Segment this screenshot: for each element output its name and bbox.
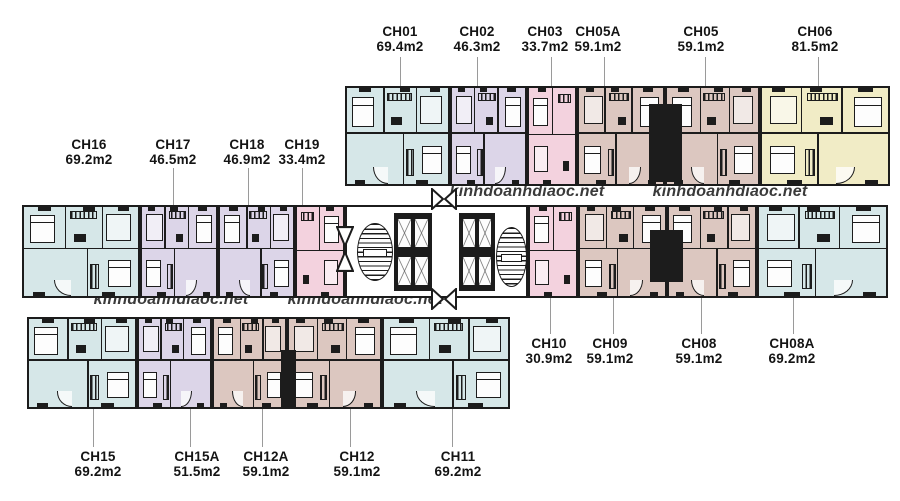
wall-divider [631,88,632,132]
fixture-icon [468,403,483,407]
stairs-icon [357,223,393,281]
stairs-icon [496,227,527,287]
wardrobe-icon [249,211,267,219]
fixture-icon [153,403,162,407]
door-arc-icon [181,391,192,407]
unit-id-text: CH15 [75,449,122,464]
bathroom-icon [105,326,128,352]
fixture-icon [817,234,830,242]
wardrobe-icon [805,149,815,176]
wall-divider [497,88,498,132]
unit-CH10 [528,205,578,298]
elevator-icon [398,219,411,247]
unit-CH03 [527,86,577,186]
unit-interior [347,88,448,184]
unit-CH18 [218,205,295,298]
fixture-icon [197,403,204,407]
wall-divider [87,359,88,407]
elevator-icon [463,257,476,285]
wardrobe-icon [807,93,837,102]
bed-icon [585,260,602,287]
unit-label-CH01: CH0169.4m2 [377,24,424,55]
wardrobe-icon [611,211,631,219]
wall-divider [317,319,318,359]
bathroom-icon [535,260,550,285]
fixture-icon [586,88,594,92]
bed-icon [422,146,442,175]
fixture-icon [38,207,52,211]
fixture-icon [364,403,373,407]
fixture-icon [272,319,279,323]
fixture-icon [229,207,238,211]
unit-area-text: 69.2m2 [769,351,816,366]
unit-label-CH06: CH0681.5m2 [792,24,839,55]
fixture-icon [448,319,460,323]
fixture-icon [101,403,114,407]
wall-divider [384,359,508,360]
bed-icon [196,215,212,243]
fixture-icon [787,180,802,184]
wardrobe-icon [720,149,727,176]
wardrobe-icon [609,264,616,289]
fixture-icon [679,207,689,211]
unit-label-CH08A: CH08A69.2m2 [769,336,816,367]
label-leader-line [173,168,174,205]
wall-divider [759,248,886,249]
wardrobe-icon [320,375,327,400]
elevator-icon [415,257,428,285]
bed-icon [476,372,501,398]
unit-id-text: CH03 [522,24,569,39]
wall-divider [798,207,799,248]
service-shaft [281,350,296,408]
fixture-icon [170,207,177,211]
fixture-icon [251,319,258,323]
bed-icon [30,215,55,243]
wall-divider [727,207,728,248]
fixture-icon [650,292,659,296]
bathroom-icon [767,214,795,241]
fixture-icon [307,403,318,407]
elevator-icon [479,219,492,247]
wall-divider [429,319,430,359]
fixture-icon [359,88,371,92]
unit-label-CH10: CH1030.9m2 [526,336,573,367]
wardrobe-icon [719,264,726,289]
wardrobe-icon [301,212,315,221]
wall-divider [633,207,634,248]
fixture-icon [856,207,871,211]
label-leader-line [818,57,819,86]
bathroom-icon [420,96,442,125]
unit-id-text: CH08 [676,336,723,351]
fixture-icon [611,88,619,92]
bathroom-icon [456,96,472,125]
fixture-icon [820,117,833,126]
fixture-icon [76,345,87,353]
fixture-icon [807,207,820,211]
fixture-icon [223,319,232,323]
fixture-icon [539,207,546,211]
unit-id-text: CH06 [792,24,839,39]
wall-divider [289,359,380,360]
wall-divider [164,207,165,248]
label-leader-line [190,409,191,447]
fixture-icon [176,234,183,242]
fixture-icon [102,292,116,296]
bathroom-icon [473,326,500,352]
fixture-icon [391,117,401,126]
wall-divider [452,132,525,133]
wall-divider [762,132,888,133]
wardrobe-icon [802,264,812,289]
wardrobe-icon [163,375,169,400]
bed-icon [143,372,157,398]
fixture-icon [118,207,129,211]
fixture-icon [810,88,823,92]
fixture-icon [714,88,723,92]
wall-divider [262,319,263,359]
fixture-icon [270,292,279,296]
elevator-icon [479,257,492,285]
expansion-joint-icon [336,226,354,272]
fixture-icon [145,319,152,323]
fixture-icon [678,88,689,92]
bathroom-icon [146,214,162,241]
fixture-icon [612,207,621,211]
elevator-icon [398,257,411,285]
unit-id-text: CH18 [224,137,271,152]
fixture-icon [355,180,365,184]
fixture-icon [37,403,48,407]
fixture-icon [512,180,519,184]
unit-interior [139,319,210,407]
expansion-joint-icon [431,188,457,210]
bathroom-icon [534,146,549,173]
door-arc-icon [186,280,197,296]
unit-interior [289,319,380,407]
unit-id-text: CH05 [678,24,725,39]
fixture-icon [587,207,596,211]
door-arc-icon [232,391,243,407]
unit-area-text: 69.2m2 [66,152,113,167]
fixture-icon [618,117,626,126]
wardrobe-icon [70,211,97,219]
fixture-icon [439,345,451,353]
label-leader-line [551,57,552,86]
bed-icon [274,260,289,287]
wall-divider [606,207,607,248]
fixture-icon [172,345,179,353]
wall-divider [183,319,184,359]
wall-divider [65,207,66,248]
fixture-icon [148,207,155,211]
unit-id-text: CH16 [66,137,113,152]
bed-icon [355,327,375,355]
bed-icon [146,260,161,287]
service-shaft [650,230,683,282]
unit-id-text: CH19 [279,137,326,152]
unit-id-text: CH08A [769,336,816,351]
wardrobe-icon [478,93,496,102]
door-arc-icon [54,280,71,296]
label-leader-line [400,57,401,86]
fixture-icon [321,292,329,296]
bed-icon [352,97,374,128]
unit-label-CH05: CH0559.1m2 [678,24,725,55]
unit-label-CH18: CH1846.9m2 [224,137,271,168]
wardrobe-icon [169,211,187,219]
unit-area-text: 30.9m2 [526,351,573,366]
door-arc-icon [416,391,435,407]
unit-CH15A [137,317,212,409]
door-arc-icon [57,391,73,407]
bed-icon [854,97,882,128]
label-leader-line [613,298,614,334]
unit-label-CH19: CH1933.4m2 [279,137,326,168]
wall-divider [716,248,717,296]
wall-divider [605,88,606,132]
unit-CH15 [27,317,137,409]
wall-divider [817,132,818,184]
door-arc-icon [629,167,642,184]
elevator-bank [459,213,495,291]
bed-icon [534,216,550,243]
wall-divider [452,359,453,407]
elevator-icon [415,219,428,247]
core-block [345,205,528,298]
label-leader-line [477,57,478,86]
door-arc-icon [834,280,853,296]
bathroom-icon [273,214,289,241]
fixture-icon [863,292,876,296]
door-arc-icon [836,167,855,184]
unit-id-text: CH15A [174,449,221,464]
fixture-icon [226,292,233,296]
label-leader-line [350,409,351,447]
unit-label-CH08: CH0859.1m2 [676,336,723,367]
bed-icon [505,97,521,128]
unit-area-text: 46.5m2 [150,152,197,167]
wardrobe-icon [387,93,411,102]
fixture-icon [564,275,570,284]
unit-interior [530,207,576,296]
wall-divider [700,88,701,132]
wall-divider [416,88,417,132]
wardrobe-icon [165,323,182,331]
wall-divider [815,248,816,296]
fixture-icon [740,207,749,211]
wall-divider [329,359,330,407]
fixture-icon [83,207,94,211]
bathroom-icon [584,96,602,125]
wall-divider [260,248,261,296]
fixture-icon [596,180,606,184]
unit-interior [142,207,216,296]
fixture-icon [166,319,173,323]
wardrobe-icon [477,149,483,176]
unit-id-text: CH11 [435,449,482,464]
fixture-icon [508,88,517,92]
fixture-icon [645,207,655,211]
unit-CH02 [450,86,527,186]
unit-area-text: 69.2m2 [75,464,122,479]
label-leader-line [262,409,263,447]
unit-area-text: 59.1m2 [334,464,381,479]
unit-CH11 [382,317,510,409]
fixture-icon [220,403,227,407]
wall-divider [841,88,842,132]
wall-divider [700,207,701,248]
fixture-icon [203,292,210,296]
elevator-icon [463,219,476,247]
unit-area-text: 81.5m2 [792,39,839,54]
door-arc-icon [691,280,704,296]
wall-divider [801,88,802,132]
wall-divider [319,207,320,250]
unit-id-text: CH05A [575,24,622,39]
wardrobe-icon [262,264,268,289]
unit-interior [529,88,575,184]
bed-icon [191,327,207,355]
wall-divider [615,132,616,184]
unit-CH06 [760,86,890,186]
wall-divider [67,319,68,359]
wall-divider [188,207,189,248]
wall-divider [403,132,404,184]
fixture-icon [245,345,252,353]
bed-icon [584,146,601,175]
wall-divider [170,359,171,407]
fixture-icon [358,319,369,323]
unit-id-text: CH17 [150,137,197,152]
fixture-icon [714,207,723,211]
unit-interior [452,88,525,184]
bed-icon [390,327,417,355]
wall-divider [139,359,210,360]
wardrobe-icon [703,211,724,219]
fixture-icon [538,88,545,92]
fixture-icon [42,319,55,323]
unit-interior [24,207,138,296]
fixture-icon [769,207,782,211]
fixture-icon [303,275,309,284]
unit-area-text: 59.1m2 [243,464,290,479]
label-leader-line [701,298,702,334]
fixture-icon [563,161,569,171]
fixture-icon [193,319,202,323]
wall-divider [174,248,175,296]
bed-icon [770,146,795,175]
bed-icon [733,260,750,287]
wardrobe-icon [242,323,259,331]
bed-icon [267,372,281,398]
bed-icon [218,327,234,355]
fixture-icon [467,180,476,184]
unit-interior [384,319,508,407]
unit-area-text: 59.1m2 [678,39,725,54]
fixture-icon [742,88,751,92]
fixture-icon [486,319,498,323]
fixture-icon [707,234,716,242]
unit-area-text: 46.9m2 [224,152,271,167]
door-arc-icon [373,167,388,184]
bed-icon [108,260,131,287]
fixture-icon [262,403,271,407]
wardrobe-icon [456,375,466,400]
unit-label-CH12: CH1259.1m2 [334,449,381,480]
wardrobe-icon [255,375,261,400]
fixture-icon [198,207,207,211]
fixture-icon [480,88,487,92]
label-leader-line [452,409,453,447]
fixture-icon [296,319,305,323]
fixture-icon [597,292,607,296]
bed-icon [533,98,549,127]
wall-divider [101,319,102,359]
unit-CH01 [345,86,450,186]
wall-divider [160,319,161,359]
bed-icon [224,215,240,243]
elevator-bank [394,213,432,291]
bathroom-icon [143,326,159,352]
unit-label-CH05A: CH05A59.1m2 [575,24,622,55]
unit-id-text: CH01 [377,24,424,39]
unit-label-CH17: CH1746.5m2 [150,137,197,168]
unit-interior [759,207,886,296]
fixture-icon [394,403,406,407]
wall-divider [468,319,469,359]
unit-CH08A [757,205,888,298]
fixture-icon [458,88,465,92]
unit-label-CH09: CH0959.1m2 [587,336,634,367]
fixture-icon [619,234,628,242]
fixture-icon [707,117,716,126]
fixture-icon [324,319,333,323]
unit-id-text: CH09 [587,336,634,351]
fixture-icon [157,292,166,296]
fixture-icon [772,88,785,92]
wall-divider [483,132,484,184]
unit-area-text: 59.1m2 [575,39,622,54]
unit-area-text: 46.3m2 [454,39,501,54]
fixture-icon [728,292,738,296]
label-leader-line [550,298,551,334]
unit-area-text: 51.5m2 [174,464,221,479]
unit-CH12 [287,317,382,409]
wall-divider [142,248,216,249]
bed-icon [34,327,57,355]
wardrobe-icon [90,264,99,289]
wall-divider [29,359,135,360]
unit-label-CH02: CH0246.3m2 [454,24,501,55]
unit-interior [29,319,135,407]
unit-interior [762,88,888,184]
fixture-icon [430,88,440,92]
bed-icon [456,146,471,175]
fixture-icon [326,207,333,211]
fixture-icon [74,234,85,242]
service-shaft [649,104,682,182]
bed-icon [107,372,128,398]
label-leader-line [793,298,794,334]
unit-label-CH03: CH0333.7m2 [522,24,569,55]
fixture-icon [676,292,685,296]
wall-divider [839,207,840,248]
door-arc-icon [495,167,506,184]
bathroom-icon [585,214,604,241]
wall-divider [270,207,271,248]
